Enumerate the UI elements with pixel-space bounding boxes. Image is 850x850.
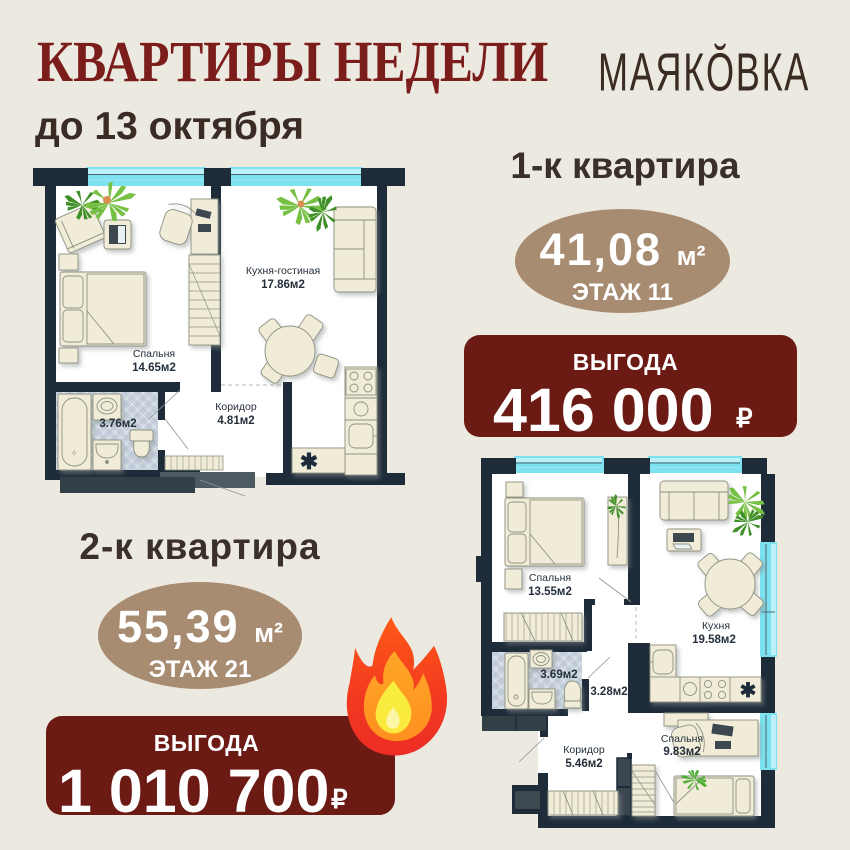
svg-text:Кухня: Кухня	[702, 620, 730, 632]
svg-text:3.76м2: 3.76м2	[99, 418, 136, 430]
svg-text:✱: ✱	[740, 680, 757, 702]
svg-text:Кухня-гостиная: Кухня-гостиная	[246, 265, 320, 277]
svg-text:3.69м2: 3.69м2	[540, 669, 577, 681]
svg-text:9.83м2: 9.83м2	[663, 746, 700, 758]
svg-text:19.58м2: 19.58м2	[692, 634, 736, 646]
svg-text:Спальня: Спальня	[529, 572, 571, 584]
svg-text:Спальня: Спальня	[133, 348, 175, 360]
svg-text:Спальня: Спальня	[661, 733, 703, 745]
svg-text:5.46м2: 5.46м2	[565, 758, 602, 770]
svg-text:13.55м2: 13.55м2	[528, 586, 572, 598]
svg-text:17.86м2: 17.86м2	[261, 279, 305, 291]
svg-text:✱: ✱	[300, 449, 318, 474]
svg-text:3.28м2: 3.28м2	[590, 686, 627, 698]
svg-text:14.65м2: 14.65м2	[132, 362, 176, 374]
svg-text:4.81м2: 4.81м2	[217, 415, 254, 427]
svg-text:Коридор: Коридор	[215, 401, 257, 413]
svg-text:✧: ✧	[70, 448, 78, 458]
svg-text:Коридор: Коридор	[563, 744, 605, 756]
